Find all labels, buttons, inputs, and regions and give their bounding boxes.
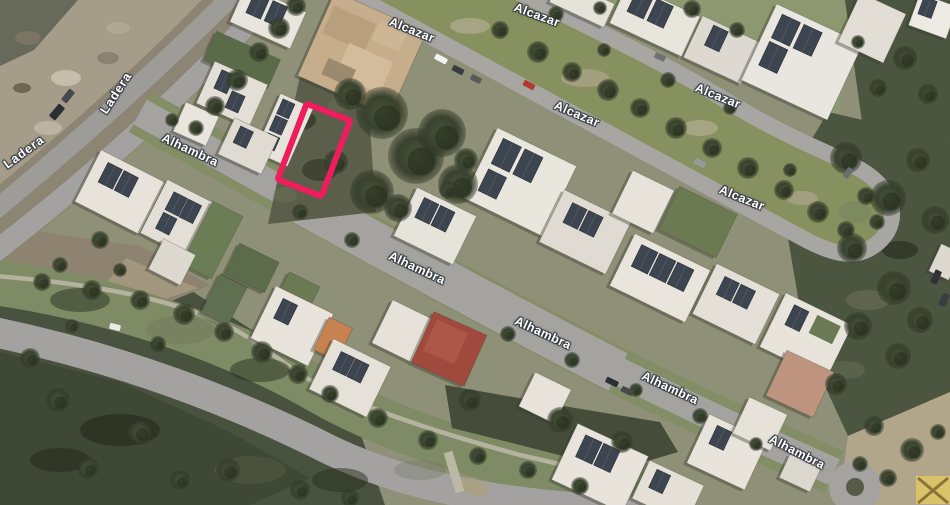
tree-icon: [665, 117, 687, 139]
tree-icon: [519, 461, 537, 479]
tree-icon: [870, 180, 906, 216]
tree-icon: [825, 373, 847, 395]
tree-icon: [851, 35, 865, 49]
tree-icon: [830, 142, 862, 174]
map-scene: [0, 0, 950, 505]
tree-icon: [844, 312, 872, 340]
tree-icon: [150, 336, 166, 352]
ground-detail: [15, 31, 41, 45]
tree-icon: [702, 138, 722, 158]
tree-icon: [906, 148, 930, 172]
tree-icon: [170, 470, 190, 490]
tree-icon: [33, 273, 51, 291]
tree-icon: [344, 232, 360, 248]
ground-detail: [13, 83, 31, 93]
tree-icon: [127, 419, 153, 445]
tree-icon: [418, 109, 466, 157]
tree-icon: [226, 69, 248, 91]
tree-icon: [113, 263, 127, 277]
ground-detail: [682, 120, 718, 136]
tree-icon: [469, 447, 487, 465]
tree-icon: [290, 480, 310, 500]
tree-icon: [729, 22, 745, 38]
tree-icon: [879, 469, 897, 487]
tree-icon: [91, 231, 109, 249]
tree-icon: [288, 364, 308, 384]
tree-icon: [921, 206, 949, 234]
tree-icon: [214, 322, 234, 342]
tree-icon: [683, 0, 701, 18]
tree-icon: [593, 1, 607, 15]
tree-icon: [893, 46, 917, 70]
tree-icon: [630, 98, 650, 118]
tree-icon: [65, 319, 79, 333]
tree-icon: [384, 194, 412, 222]
tree-icon: [918, 84, 938, 104]
tree-icon: [597, 43, 611, 57]
tree-icon: [491, 21, 509, 39]
tree-icon: [774, 180, 794, 200]
tree-icon: [439, 181, 457, 199]
tree-icon: [564, 352, 580, 368]
satellite-imagery[interactable]: [0, 0, 950, 505]
ground-detail: [450, 18, 490, 34]
ground-detail: [394, 460, 446, 480]
tree-icon: [562, 62, 582, 82]
tree-icon: [52, 257, 68, 273]
tree-icon: [869, 214, 885, 230]
tree-icon: [877, 271, 911, 305]
tree-icon: [130, 290, 150, 310]
tree-icon: [737, 157, 759, 179]
tree-icon: [611, 431, 633, 453]
ground-detail: [51, 70, 81, 86]
tree-icon: [660, 72, 676, 88]
tree-icon: [723, 101, 737, 115]
tree-icon: [900, 438, 924, 462]
tree-icon: [334, 78, 366, 110]
tree-icon: [852, 456, 868, 472]
tree-icon: [930, 424, 946, 440]
cul-de-sac: [846, 478, 864, 496]
tree-icon: [173, 303, 195, 325]
tree-icon: [907, 307, 933, 333]
tree-icon: [292, 204, 308, 220]
tree-icon: [20, 348, 40, 368]
tree-icon: [864, 416, 884, 436]
tree-icon: [783, 163, 797, 177]
tree-icon: [500, 326, 516, 342]
tree-icon: [77, 457, 99, 479]
tree-icon: [869, 79, 887, 97]
tree-icon: [249, 42, 269, 62]
tree-icon: [597, 79, 619, 101]
tree-icon: [459, 389, 481, 411]
ground-detail: [34, 121, 62, 135]
satellite-map-viewport[interactable]: AlcazarAlcazarAlcazarAlcazarAlcazarAlham…: [0, 0, 950, 505]
tree-icon: [165, 113, 179, 127]
tree-icon: [368, 408, 388, 428]
tree-icon: [321, 385, 339, 403]
tree-icon: [527, 41, 549, 63]
tree-icon: [454, 148, 478, 172]
ground-detail: [106, 22, 130, 34]
tree-icon: [268, 17, 290, 39]
tree-icon: [807, 201, 829, 223]
ground-detail: [273, 187, 297, 203]
tree-icon: [547, 407, 573, 433]
tree-icon: [216, 458, 240, 482]
ground-detail: [312, 468, 368, 492]
ground-detail: [97, 52, 119, 64]
tree-icon: [571, 477, 589, 495]
tree-icon: [251, 341, 273, 363]
tree-icon: [82, 280, 102, 300]
tree-icon: [418, 430, 438, 450]
tree-icon: [885, 343, 911, 369]
tree-icon: [548, 6, 564, 22]
tree-icon: [837, 233, 867, 263]
tree-icon: [205, 96, 225, 116]
tree-icon: [692, 408, 708, 424]
tree-icon: [46, 388, 70, 412]
tree-icon: [188, 120, 204, 136]
tree-icon: [749, 437, 763, 451]
